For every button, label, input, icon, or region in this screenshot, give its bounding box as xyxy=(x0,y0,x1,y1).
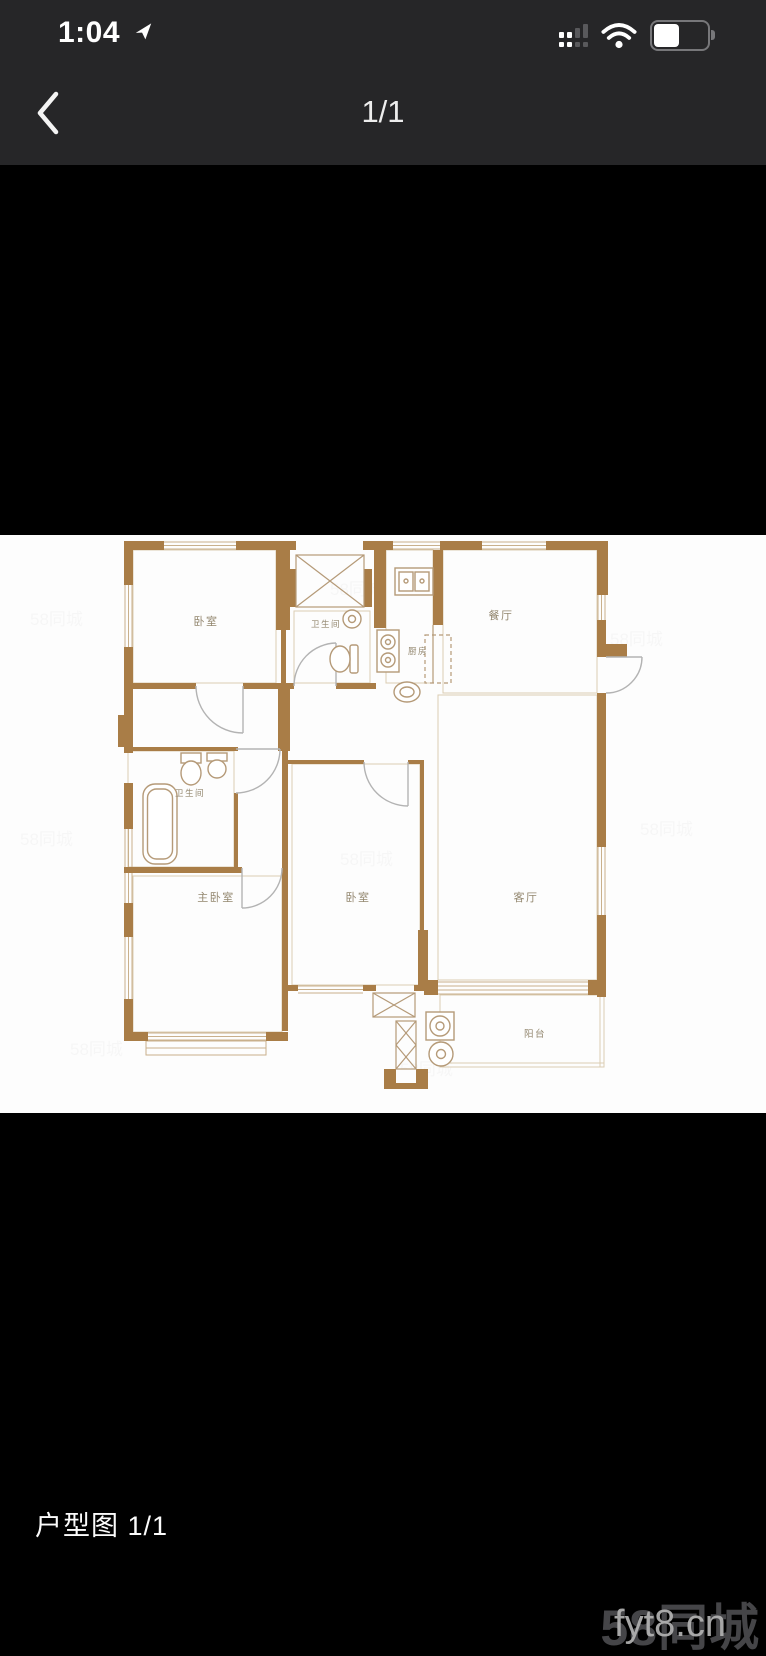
room-label-kitchen: 厨房 xyxy=(408,646,428,656)
room-label-bathroom-top: 卫生间 xyxy=(311,619,341,629)
room-label-bedroom-top: 卧室 xyxy=(194,614,219,628)
watermark: 58同城 fyt8.cn xyxy=(446,1576,766,1656)
photo-caption: 户型图 1/1 xyxy=(35,1504,168,1543)
status-time: 1:04 xyxy=(58,16,120,50)
cellular-signal-icon xyxy=(559,24,588,47)
room-label-bathroom-left: 卫生间 xyxy=(175,788,205,798)
status-icons xyxy=(559,20,710,51)
room-label-master-bedroom: 主卧室 xyxy=(197,890,235,904)
floor-plan-image[interactable]: 58同城 58同城 58同城 58同城 58同城 58同城 58同城 58同城 xyxy=(0,535,766,1113)
tile-watermark: 58同城 xyxy=(20,825,73,850)
location-arrow-icon xyxy=(134,22,153,41)
wifi-icon xyxy=(601,22,637,49)
room-label-living: 客厅 xyxy=(514,890,539,904)
status-bar: 1:04 xyxy=(0,0,766,64)
overlay-watermark: fyt8.cn xyxy=(614,1603,726,1646)
fixtures xyxy=(143,568,454,1066)
page-indicator: 1/1 xyxy=(0,94,766,130)
nav-bar: 1/1 xyxy=(0,64,766,165)
room-labels: 卧室 卫生间 厨房 餐厅 卫生间 主卧室 卧室 客厅 阳台 xyxy=(175,608,546,1040)
tile-watermark: 58同城 xyxy=(30,605,83,630)
tile-watermark: 58同城 xyxy=(70,1035,123,1060)
room-label-balcony: 阳台 xyxy=(524,1028,546,1040)
header: 1:04 xyxy=(0,0,766,165)
battery-icon xyxy=(650,20,710,51)
floor-plan-drawing: 卧室 卫生间 厨房 餐厅 卫生间 主卧室 卧室 客厅 阳台 xyxy=(118,535,648,1113)
screen: 1:04 xyxy=(0,0,766,1656)
room-label-bedroom-middle: 卧室 xyxy=(346,890,371,904)
room-label-dining: 餐厅 xyxy=(489,608,514,622)
flue-notch xyxy=(396,1069,416,1083)
